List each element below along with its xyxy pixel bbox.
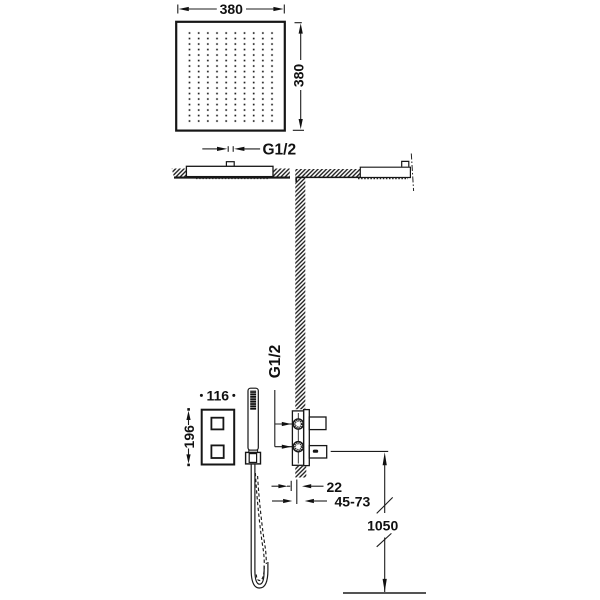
svg-text:G1/2: G1/2 [263, 141, 297, 158]
svg-text:380: 380 [291, 64, 307, 88]
svg-text:196: 196 [181, 425, 197, 449]
svg-text:116: 116 [207, 388, 230, 404]
svg-text:45-73: 45-73 [335, 494, 371, 510]
svg-text:G1/2: G1/2 [267, 345, 284, 379]
svg-text:380: 380 [220, 1, 244, 17]
svg-text:1050: 1050 [367, 518, 398, 534]
